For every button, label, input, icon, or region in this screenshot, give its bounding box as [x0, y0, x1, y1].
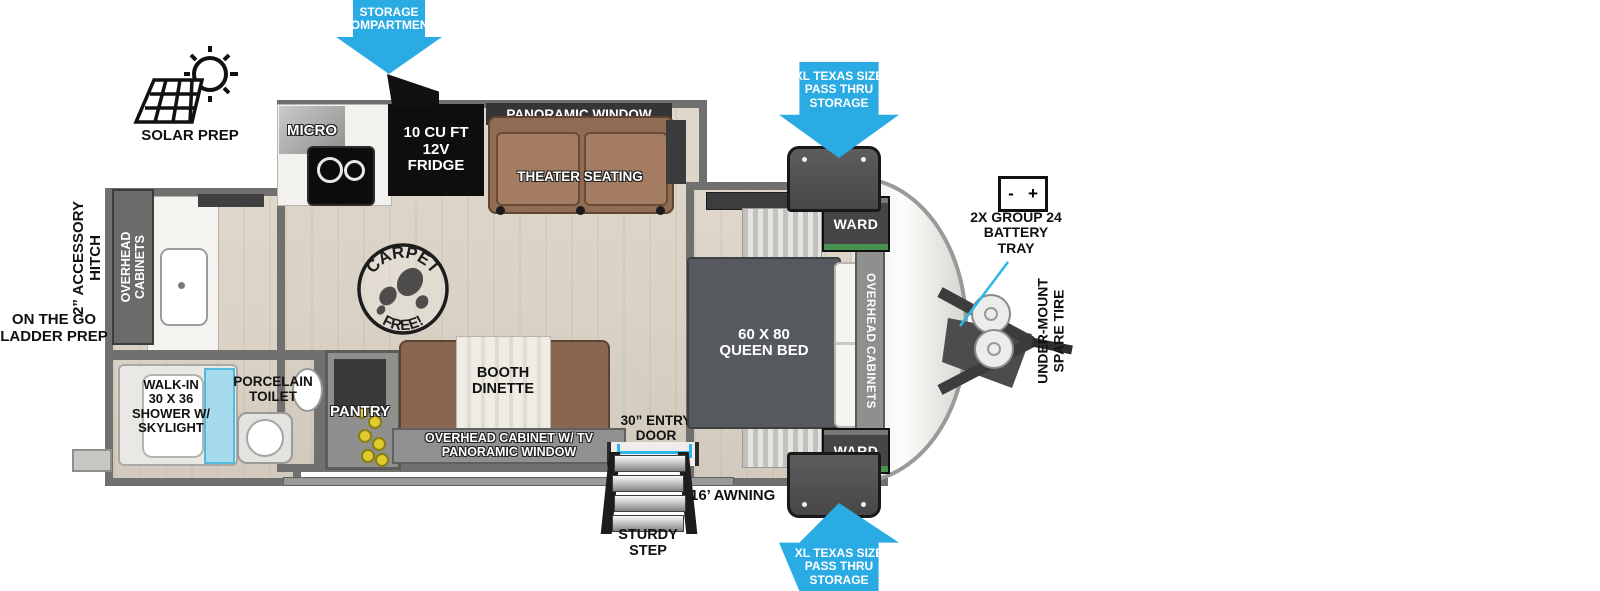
pass-thru-bottom-label: XL TEXAS SIZE PASS THRU STORAGE [795, 547, 883, 587]
stove-burner [344, 160, 365, 181]
theater-seating-label: THEATER SEATING [500, 170, 660, 185]
pantry-label: PANTRY [325, 404, 395, 421]
queen-bed-label: 60 X 80 QUEEN BED [719, 327, 808, 360]
ladder-prep-bumper [72, 449, 112, 472]
pantry-can [361, 449, 375, 463]
step-tread [614, 495, 686, 512]
fridge-label: 10 CU FT 12V FRIDGE [403, 125, 468, 175]
sofa-foot [496, 206, 505, 215]
entry-steps [605, 452, 693, 534]
storage-compartment-arrow: STORAGE COMPARTMENT [336, 0, 442, 74]
theater-seating-sofa: THEATER SEATING [488, 116, 674, 214]
stove-burner [317, 157, 343, 183]
screw-icon [861, 502, 866, 507]
booth-dinette-label: BOOTH DINETTE [459, 366, 547, 398]
bed-step-top [742, 208, 822, 260]
step-tread [612, 475, 684, 492]
dinette-bench [399, 340, 460, 436]
propane-tank-icon [975, 330, 1013, 368]
solar-prep: SOLAR PREP [128, 42, 252, 154]
dinette-bench [549, 340, 610, 436]
solar-panel-icon [128, 42, 252, 128]
ward-top-label: WARD [834, 216, 879, 232]
battery-tray-label: 2X GROUP 24 BATTERY TRAY [960, 210, 1072, 256]
sturdy-step-label: STURDY STEP [606, 528, 690, 560]
pantry-can [375, 453, 389, 467]
pass-thru-top-label: XL TEXAS SIZE PASS THRU STORAGE [795, 70, 883, 158]
rv-floorplan: OVERHEAD CABINETS WALK-IN 30 X 36 SHOWER… [0, 0, 1600, 591]
sink-faucet [178, 282, 185, 289]
battery-plus: + [1028, 184, 1038, 204]
battery-minus: - [1008, 184, 1014, 204]
micro-label: MICRO [287, 122, 337, 139]
storage-compartment-label: STORAGE COMPARTMENT [342, 6, 436, 74]
bathroom-wall-top [112, 350, 324, 360]
refrigerator: 10 CU FT 12V FRIDGE [388, 104, 484, 196]
screw-icon [802, 502, 807, 507]
queen-bed: 60 X 80 QUEEN BED [687, 257, 841, 429]
ladder-prep-label: ON THE GO LADDER PREP [0, 312, 108, 345]
carpet-free-stamp: CARPET FREE! [352, 240, 454, 340]
overhead-cabinet-tv-band: OVERHEAD CABINET W/ TV PANORAMIC WINDOW [392, 428, 626, 464]
battery-icon: - + [998, 176, 1048, 212]
sofa-foot [656, 206, 665, 215]
panel-grid-icon [136, 80, 202, 122]
awning-label: 16’ AWNING [690, 488, 802, 505]
pass-thru-top-arrow: XL TEXAS SIZE PASS THRU STORAGE [779, 62, 899, 158]
rear-counter-vent [198, 194, 264, 207]
toilet-label: PORCELAIN TOILET [224, 375, 322, 405]
overhead-cabinets-bed-label: OVERHEAD CABINETS [864, 273, 876, 409]
stove-cooktop [307, 146, 375, 206]
overhead-cabinets-rear-label: OVERHEAD CABINETS [119, 232, 148, 303]
pantry-can [358, 429, 372, 443]
spare-tire-label: UNDER-MOUNT SPARE TIRE [1035, 256, 1066, 406]
storage-door-flap [387, 74, 439, 106]
overhead-cabinet-tv-label: OVERHEAD CABINET W/ TV PANORAMIC WINDOW [425, 432, 593, 460]
overhead-cabinets-rear-band: OVERHEAD CABINETS [112, 189, 154, 345]
sofa-side-table [666, 120, 686, 184]
solar-prep-label: SOLAR PREP [128, 128, 252, 145]
pass-thru-box-top [787, 146, 881, 212]
shower-label: WALK-IN 30 X 36 SHOWER W/ SKYLIGHT [118, 378, 224, 435]
step-tread [614, 455, 686, 472]
toilet-base [237, 412, 293, 464]
sofa-foot [576, 206, 585, 215]
pantry-can [372, 437, 386, 451]
toilet-seat [246, 419, 284, 457]
screw-icon [802, 157, 807, 162]
screw-icon [861, 157, 866, 162]
overhead-cabinets-bed-band: OVERHEAD CABINETS [855, 246, 885, 436]
